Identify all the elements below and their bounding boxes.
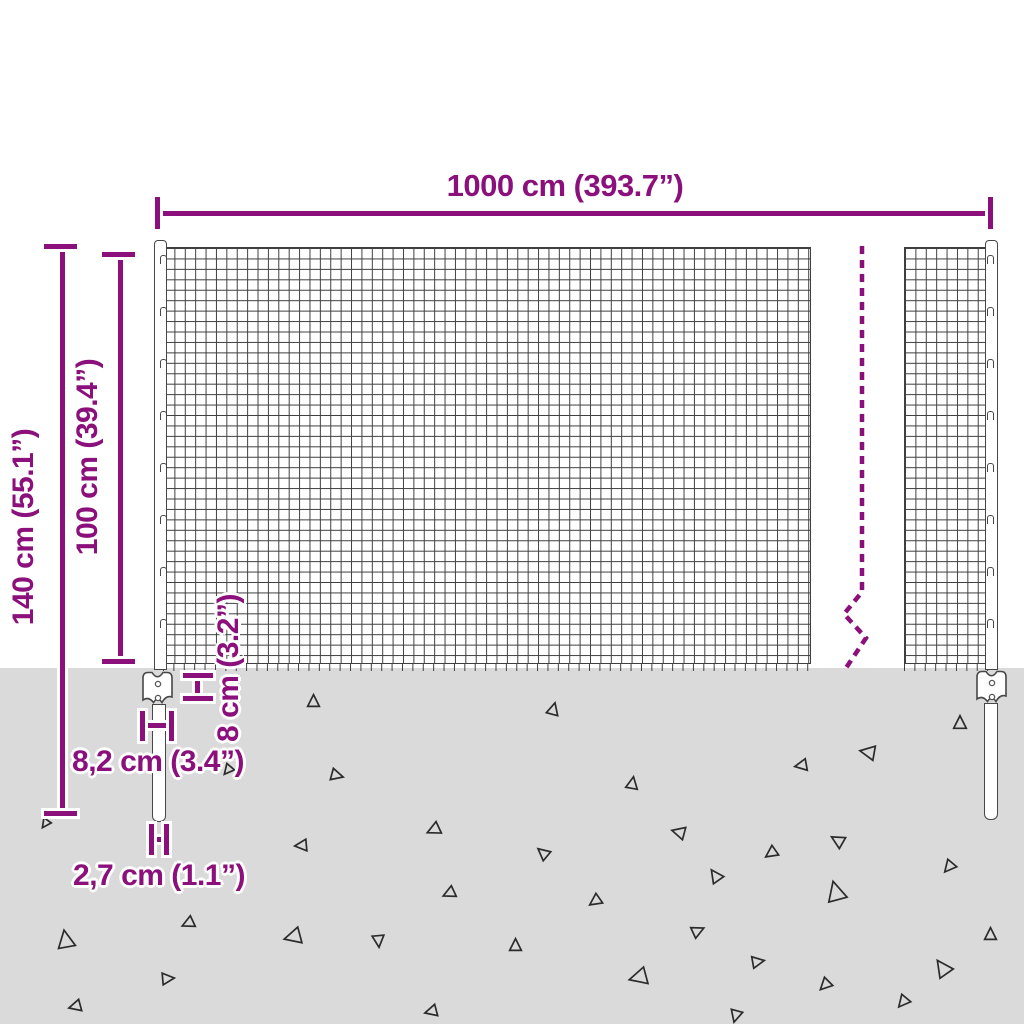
mesh-clip — [987, 619, 994, 628]
dim-label-total-width: 1000 cm (393.7”) — [315, 168, 815, 204]
mesh-clip — [987, 411, 994, 420]
dim-line-total-height — [60, 246, 65, 814]
mesh-clip — [987, 307, 994, 316]
fence-dimension-diagram: 1000 cm (393.7”) 140 cm (55.1”) 100 cm (… — [0, 0, 1024, 1024]
dim-tick-total-width-right — [988, 197, 993, 229]
dim-label-post-width: 2,7 cm (1.1”) — [0, 859, 319, 893]
dim-label-mesh-height: 100 cm (39.4”) — [71, 297, 109, 617]
mesh-clip — [987, 463, 994, 472]
dim-tick-plate-height-top — [183, 673, 213, 678]
dim-line-plate-width — [142, 723, 172, 728]
dim-tick-mesh-height-bottom — [102, 659, 135, 664]
mesh-clip — [987, 359, 994, 368]
dim-line-plate-height — [195, 677, 200, 697]
anchor-plate-right — [974, 668, 1009, 707]
dim-tick-post-width-left — [149, 824, 154, 855]
fence-post-left — [154, 240, 167, 670]
dim-tick-plate-width-right — [169, 711, 174, 741]
ground-spike-right — [984, 703, 998, 820]
mesh-clip — [160, 359, 167, 368]
dim-line-mesh-height — [118, 254, 123, 662]
dim-tick-total-height-top — [44, 244, 77, 249]
anchor-plate-left — [140, 669, 175, 708]
mesh-clip — [160, 463, 167, 472]
dim-tick-total-width-left — [155, 197, 160, 229]
mesh-clip — [160, 515, 167, 524]
dim-line-total-width — [157, 211, 991, 216]
dim-label-total-height: 140 cm (55.1”) — [7, 367, 45, 687]
mesh-clip — [160, 307, 167, 316]
dashed-break-line — [844, 246, 866, 668]
mesh-clip — [160, 411, 167, 420]
dim-tick-mesh-height-top — [102, 252, 135, 257]
mesh-clip — [160, 619, 167, 628]
mesh-clip — [987, 567, 994, 576]
mesh-clip — [160, 567, 167, 576]
fence-post-right — [985, 240, 998, 670]
mesh-clip — [987, 255, 994, 264]
dim-tick-plate-width-left — [140, 711, 145, 741]
mesh-clip — [987, 515, 994, 524]
dim-tick-post-width-right — [164, 824, 169, 855]
dim-tick-plate-height-bottom — [183, 696, 213, 701]
dim-label-plate-height: 8 cm (3.2”) — [212, 508, 250, 828]
mesh-clip — [160, 255, 167, 264]
dim-tick-total-height-bottom — [44, 811, 77, 816]
dim-label-plate-width: 8,2 cm (3.4”) — [0, 745, 318, 779]
